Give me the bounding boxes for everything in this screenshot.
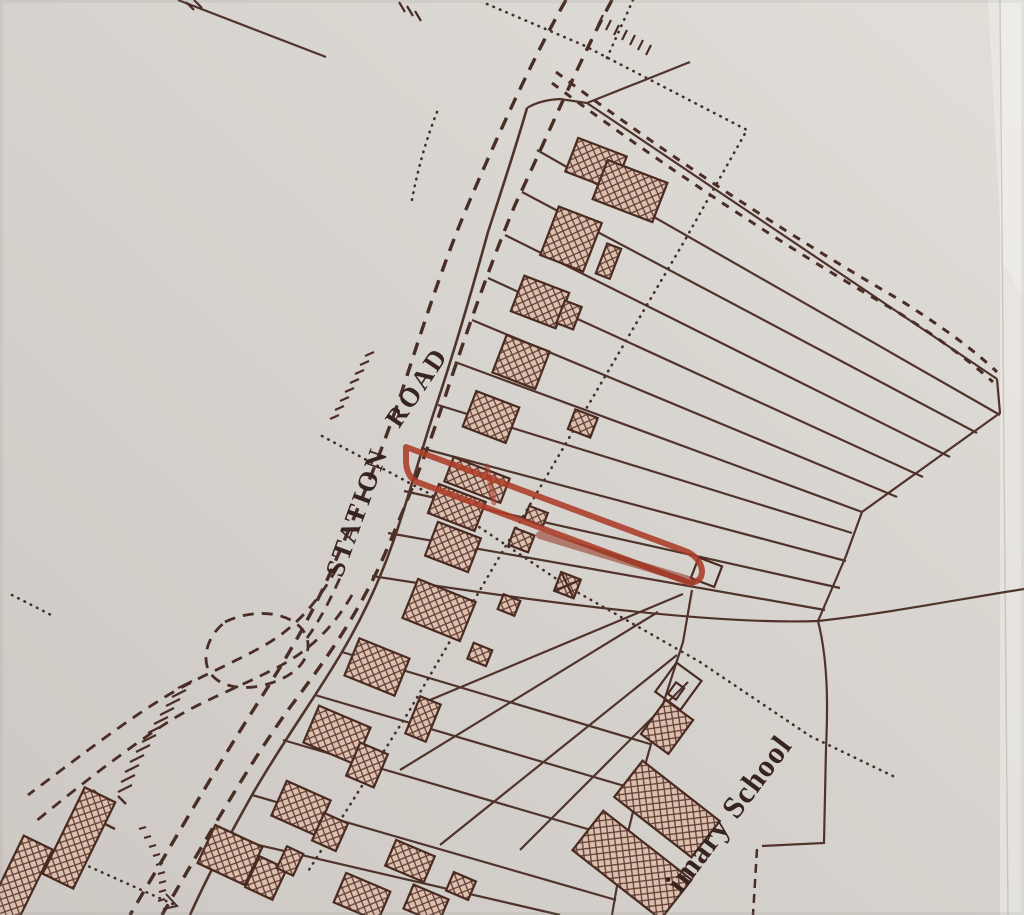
scanned-site-plan: STATION ROAD imary School [0,0,1024,915]
site-plan-map: STATION ROAD imary School [0,0,1024,915]
paper-shading [0,0,1024,915]
